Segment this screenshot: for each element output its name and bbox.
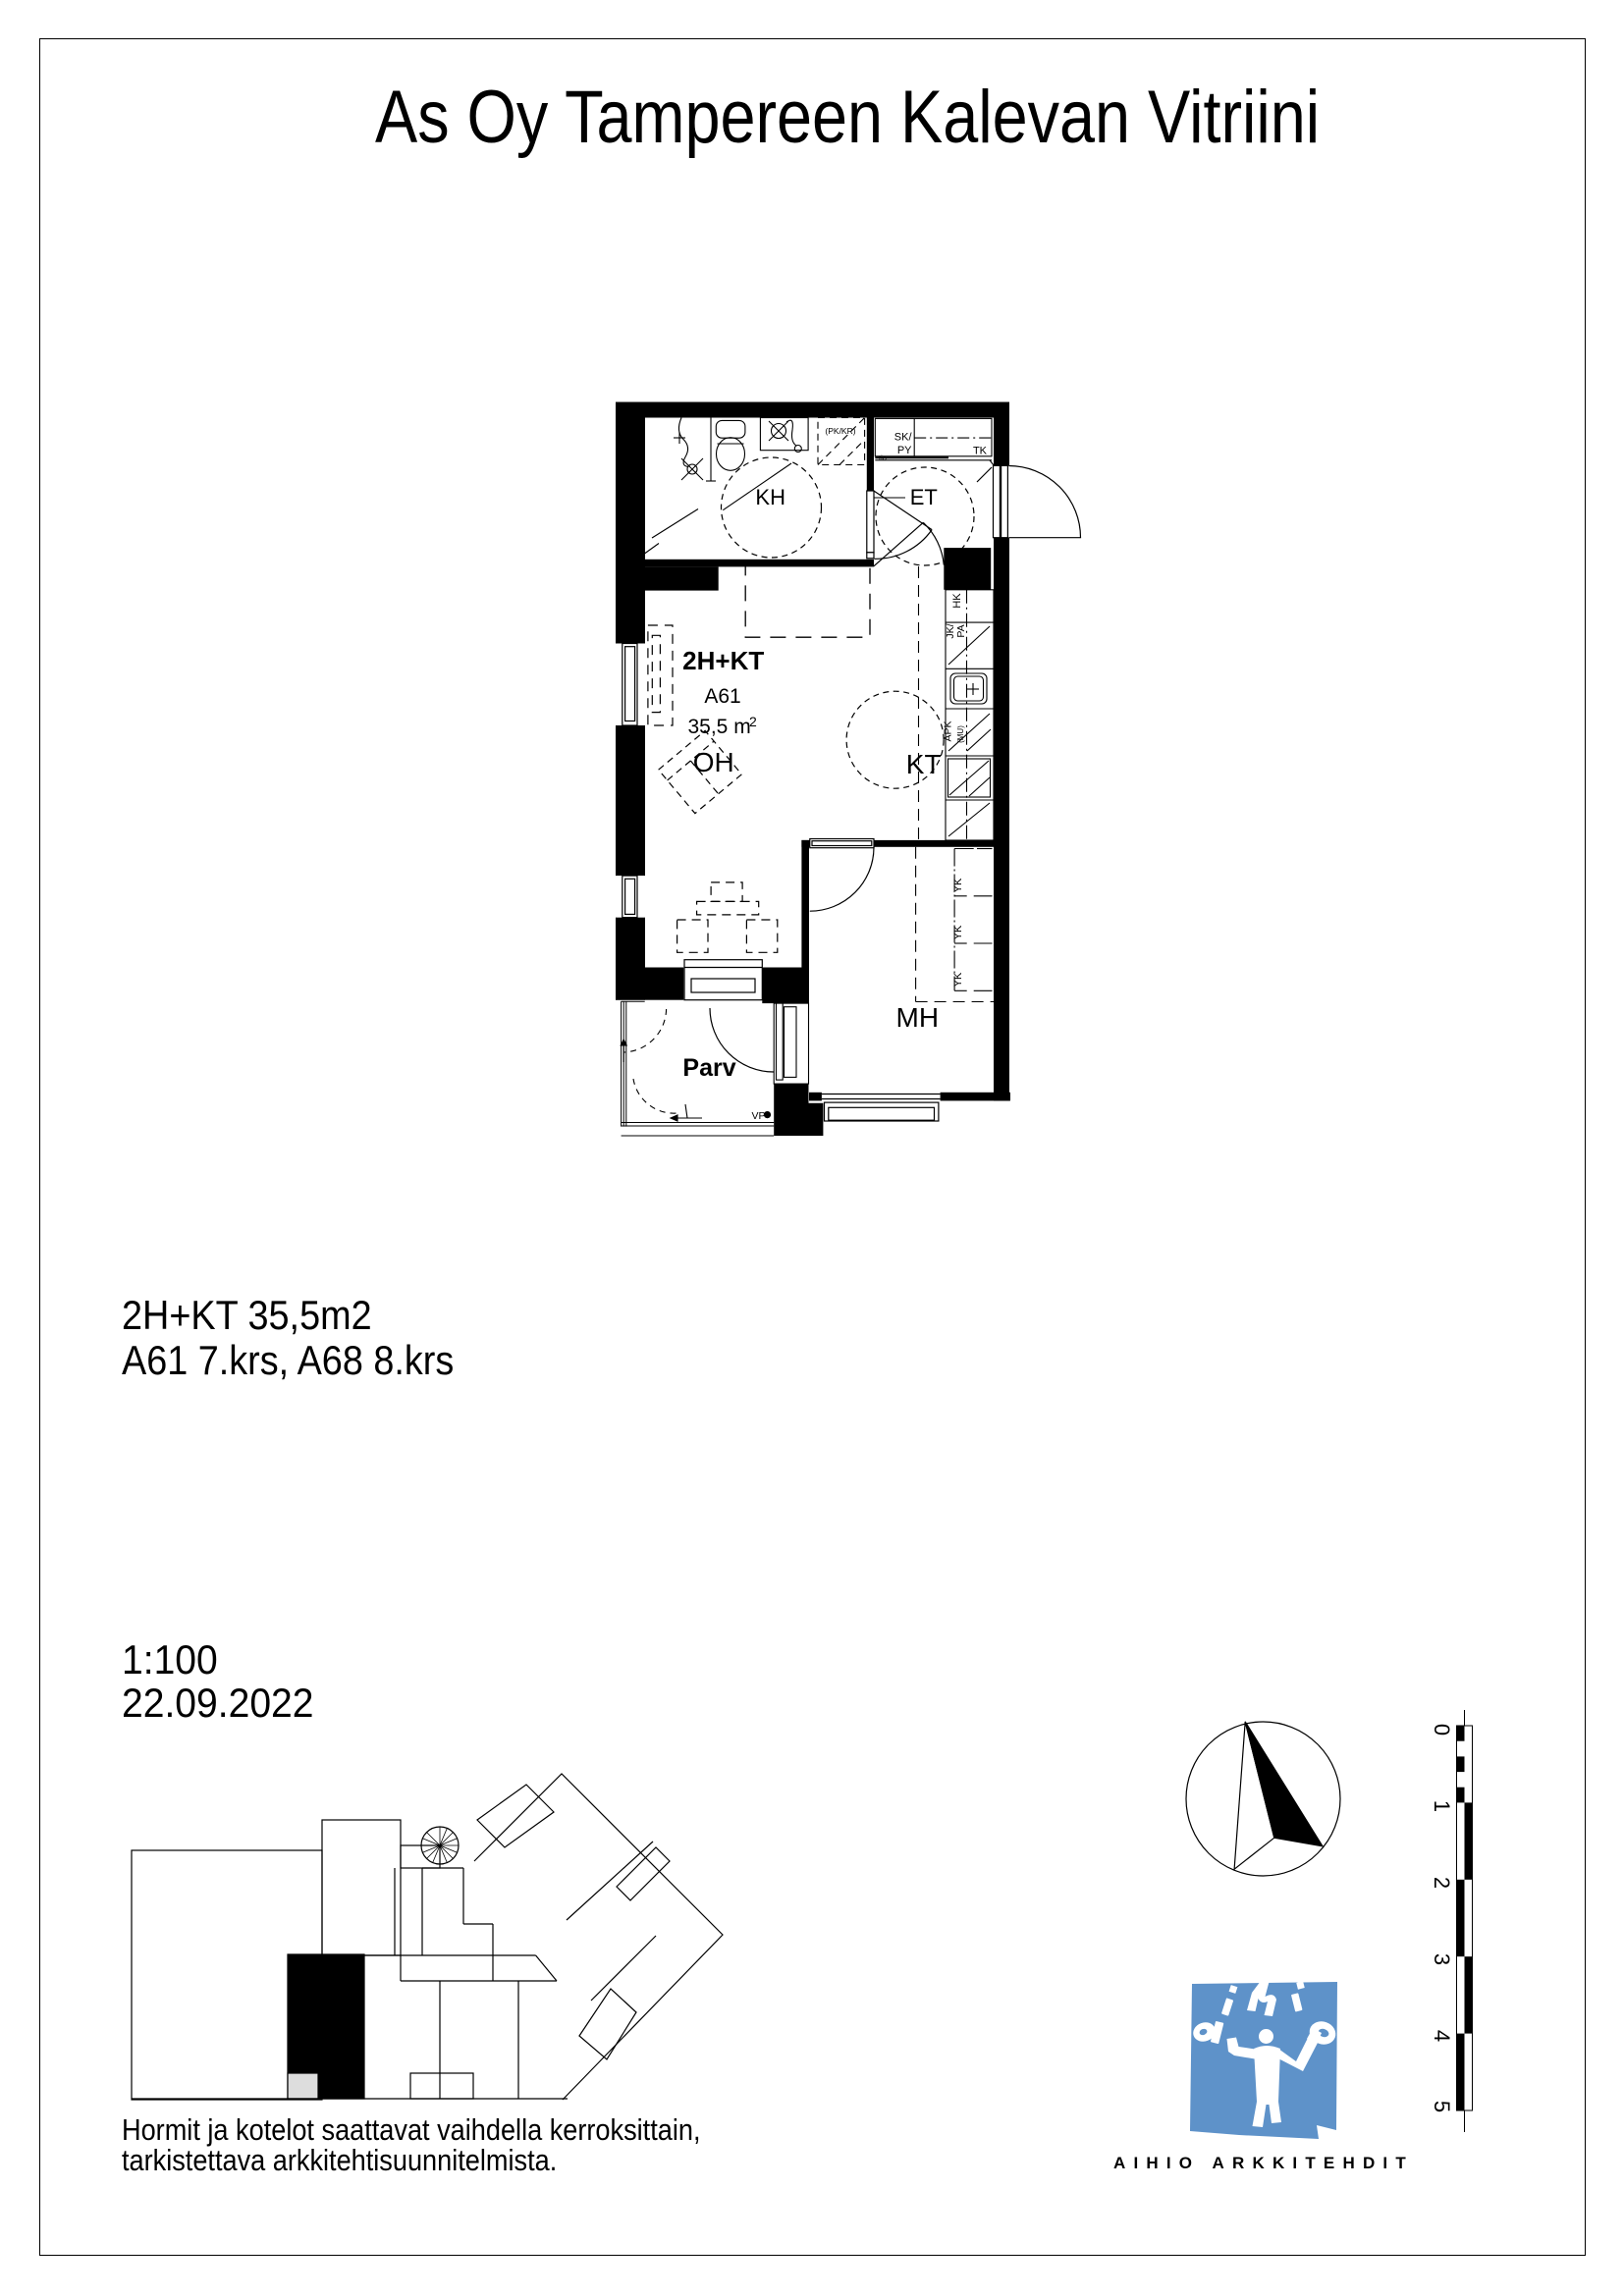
svg-text:4: 4	[1430, 2030, 1454, 2042]
svg-text:(MU): (MU)	[956, 725, 965, 743]
svg-text:PA: PA	[955, 624, 967, 637]
svg-text:3: 3	[1430, 1953, 1454, 1965]
svg-text:35,5 m: 35,5 m	[687, 716, 750, 738]
svg-text:SK/: SK/	[894, 432, 913, 444]
svg-text:TK: TK	[973, 446, 988, 457]
svg-text:2: 2	[749, 714, 757, 729]
svg-text:2H+KT: 2H+KT	[682, 646, 764, 675]
svg-text:APK: APK	[943, 721, 954, 741]
svg-text:2: 2	[1430, 1877, 1454, 1889]
svg-text:tio: tio	[879, 454, 887, 462]
svg-text:0: 0	[1430, 1724, 1454, 1735]
svg-text:YK: YK	[952, 878, 964, 892]
svg-text:5: 5	[1430, 2101, 1454, 2112]
svg-text:(PK/KR): (PK/KR)	[825, 426, 855, 436]
svg-text:ET: ET	[910, 485, 938, 509]
svg-text:1: 1	[1430, 1800, 1454, 1812]
svg-text:YK: YK	[952, 925, 964, 939]
svg-text:PY: PY	[897, 445, 912, 456]
svg-text:A61: A61	[704, 685, 740, 708]
svg-text:KH: KH	[755, 485, 785, 509]
svg-text:HK: HK	[951, 593, 963, 609]
svg-text:KT: KT	[906, 749, 942, 779]
svg-text:VP: VP	[752, 1110, 766, 1122]
svg-text:Parv: Parv	[682, 1054, 735, 1082]
svg-text:OH: OH	[693, 747, 734, 777]
svg-text:MH: MH	[896, 1002, 940, 1033]
svg-text:YK: YK	[952, 972, 964, 987]
